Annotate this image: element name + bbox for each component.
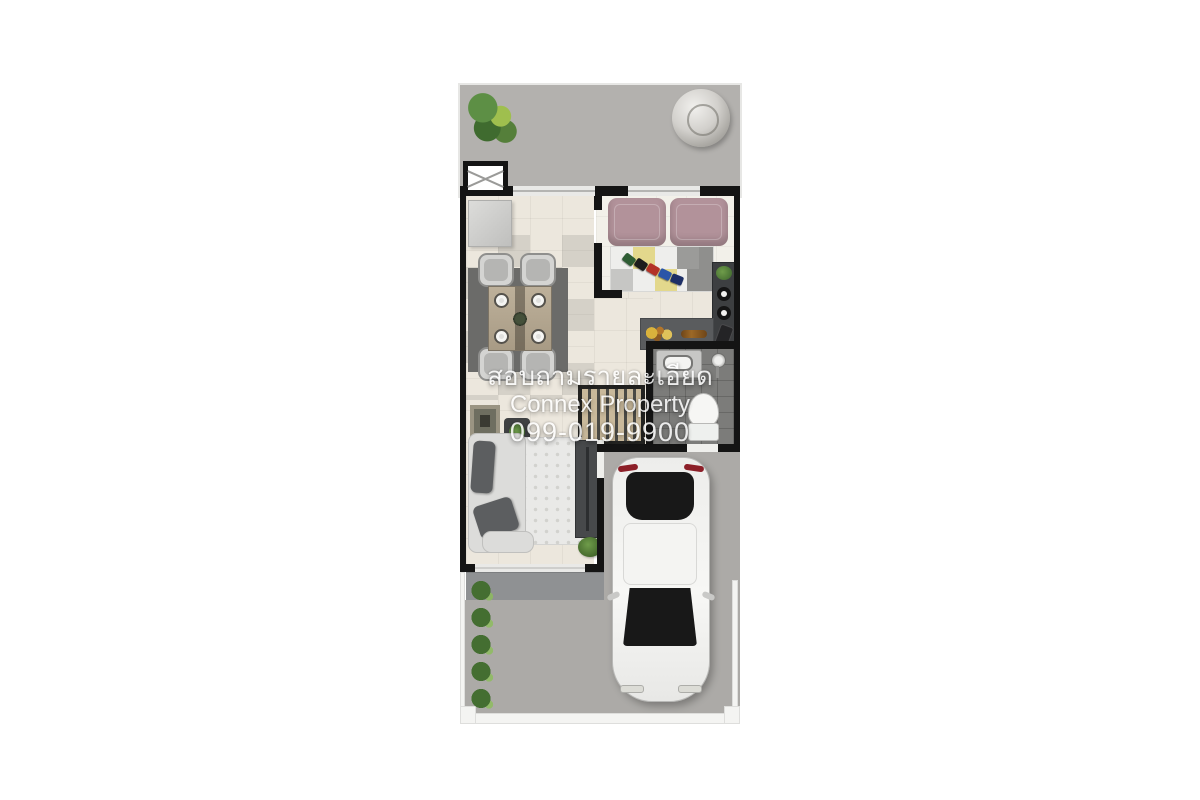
play-rug [610,246,714,292]
dining-table [488,286,552,351]
headlight-icon [678,685,702,693]
living-bottom-wall-1 [460,564,475,572]
dining-chair-icon [520,253,556,287]
sofa-cushion-icon [470,440,496,493]
bed-cushion-right [670,198,728,246]
car-windshield [623,588,697,646]
headlight-icon [620,685,644,693]
sofa-ottoman [482,531,534,553]
dining-chair-icon [478,253,514,287]
car-roof [623,523,697,585]
kitchen-console [712,262,736,350]
fence-post-right [724,706,740,724]
car-top-view [612,457,710,702]
watermark: สอบถามรายละเอียด Connex Property 099-019… [460,361,740,447]
plate-icon [531,293,546,308]
fence-right [732,580,738,713]
watermark-line-phone: 099-019-9900 [460,418,740,447]
wall-top-2 [595,186,628,196]
page-background: สอบถามรายละเอียด Connex Property 099-019… [0,0,1200,800]
shrub-row-icon [463,577,503,711]
fence-bottom [460,713,740,724]
window-kitchen [513,186,595,196]
plate-icon [531,329,546,344]
bathroom-wall-top [646,341,734,349]
car-rear-window [626,472,694,520]
toy-icon [670,273,684,286]
wall-partition-a1 [594,196,602,210]
small-plant-icon [716,266,732,280]
potted-plant-icon [466,91,522,147]
watermark-line-brand: Connex Property [460,391,740,418]
stove-burner-icon [717,287,731,301]
living-wall-right [597,478,604,570]
window-bedroom [628,186,700,196]
watermark-line-thai: สอบถามรายละเอียด [460,361,740,391]
bed-cushion-left [608,198,666,246]
tv-console [575,440,599,538]
floor-plan: สอบถามรายละเอียด Connex Property 099-019… [460,85,740,725]
stove-burner-icon [717,306,731,320]
food-icon [646,325,674,341]
roast-skewer-icon [681,330,707,338]
water-tank-icon [672,89,730,147]
wall-partition-b [594,290,622,298]
wall-partition-a2 [594,243,602,290]
utility-shaft-box-icon [463,161,508,195]
sliding-door-living [475,564,585,572]
kitchen-counter [468,200,512,247]
centerpiece-icon [512,311,528,327]
plate-icon [494,329,509,344]
living-bottom-wall-2 [585,564,604,572]
plate-icon [494,293,509,308]
